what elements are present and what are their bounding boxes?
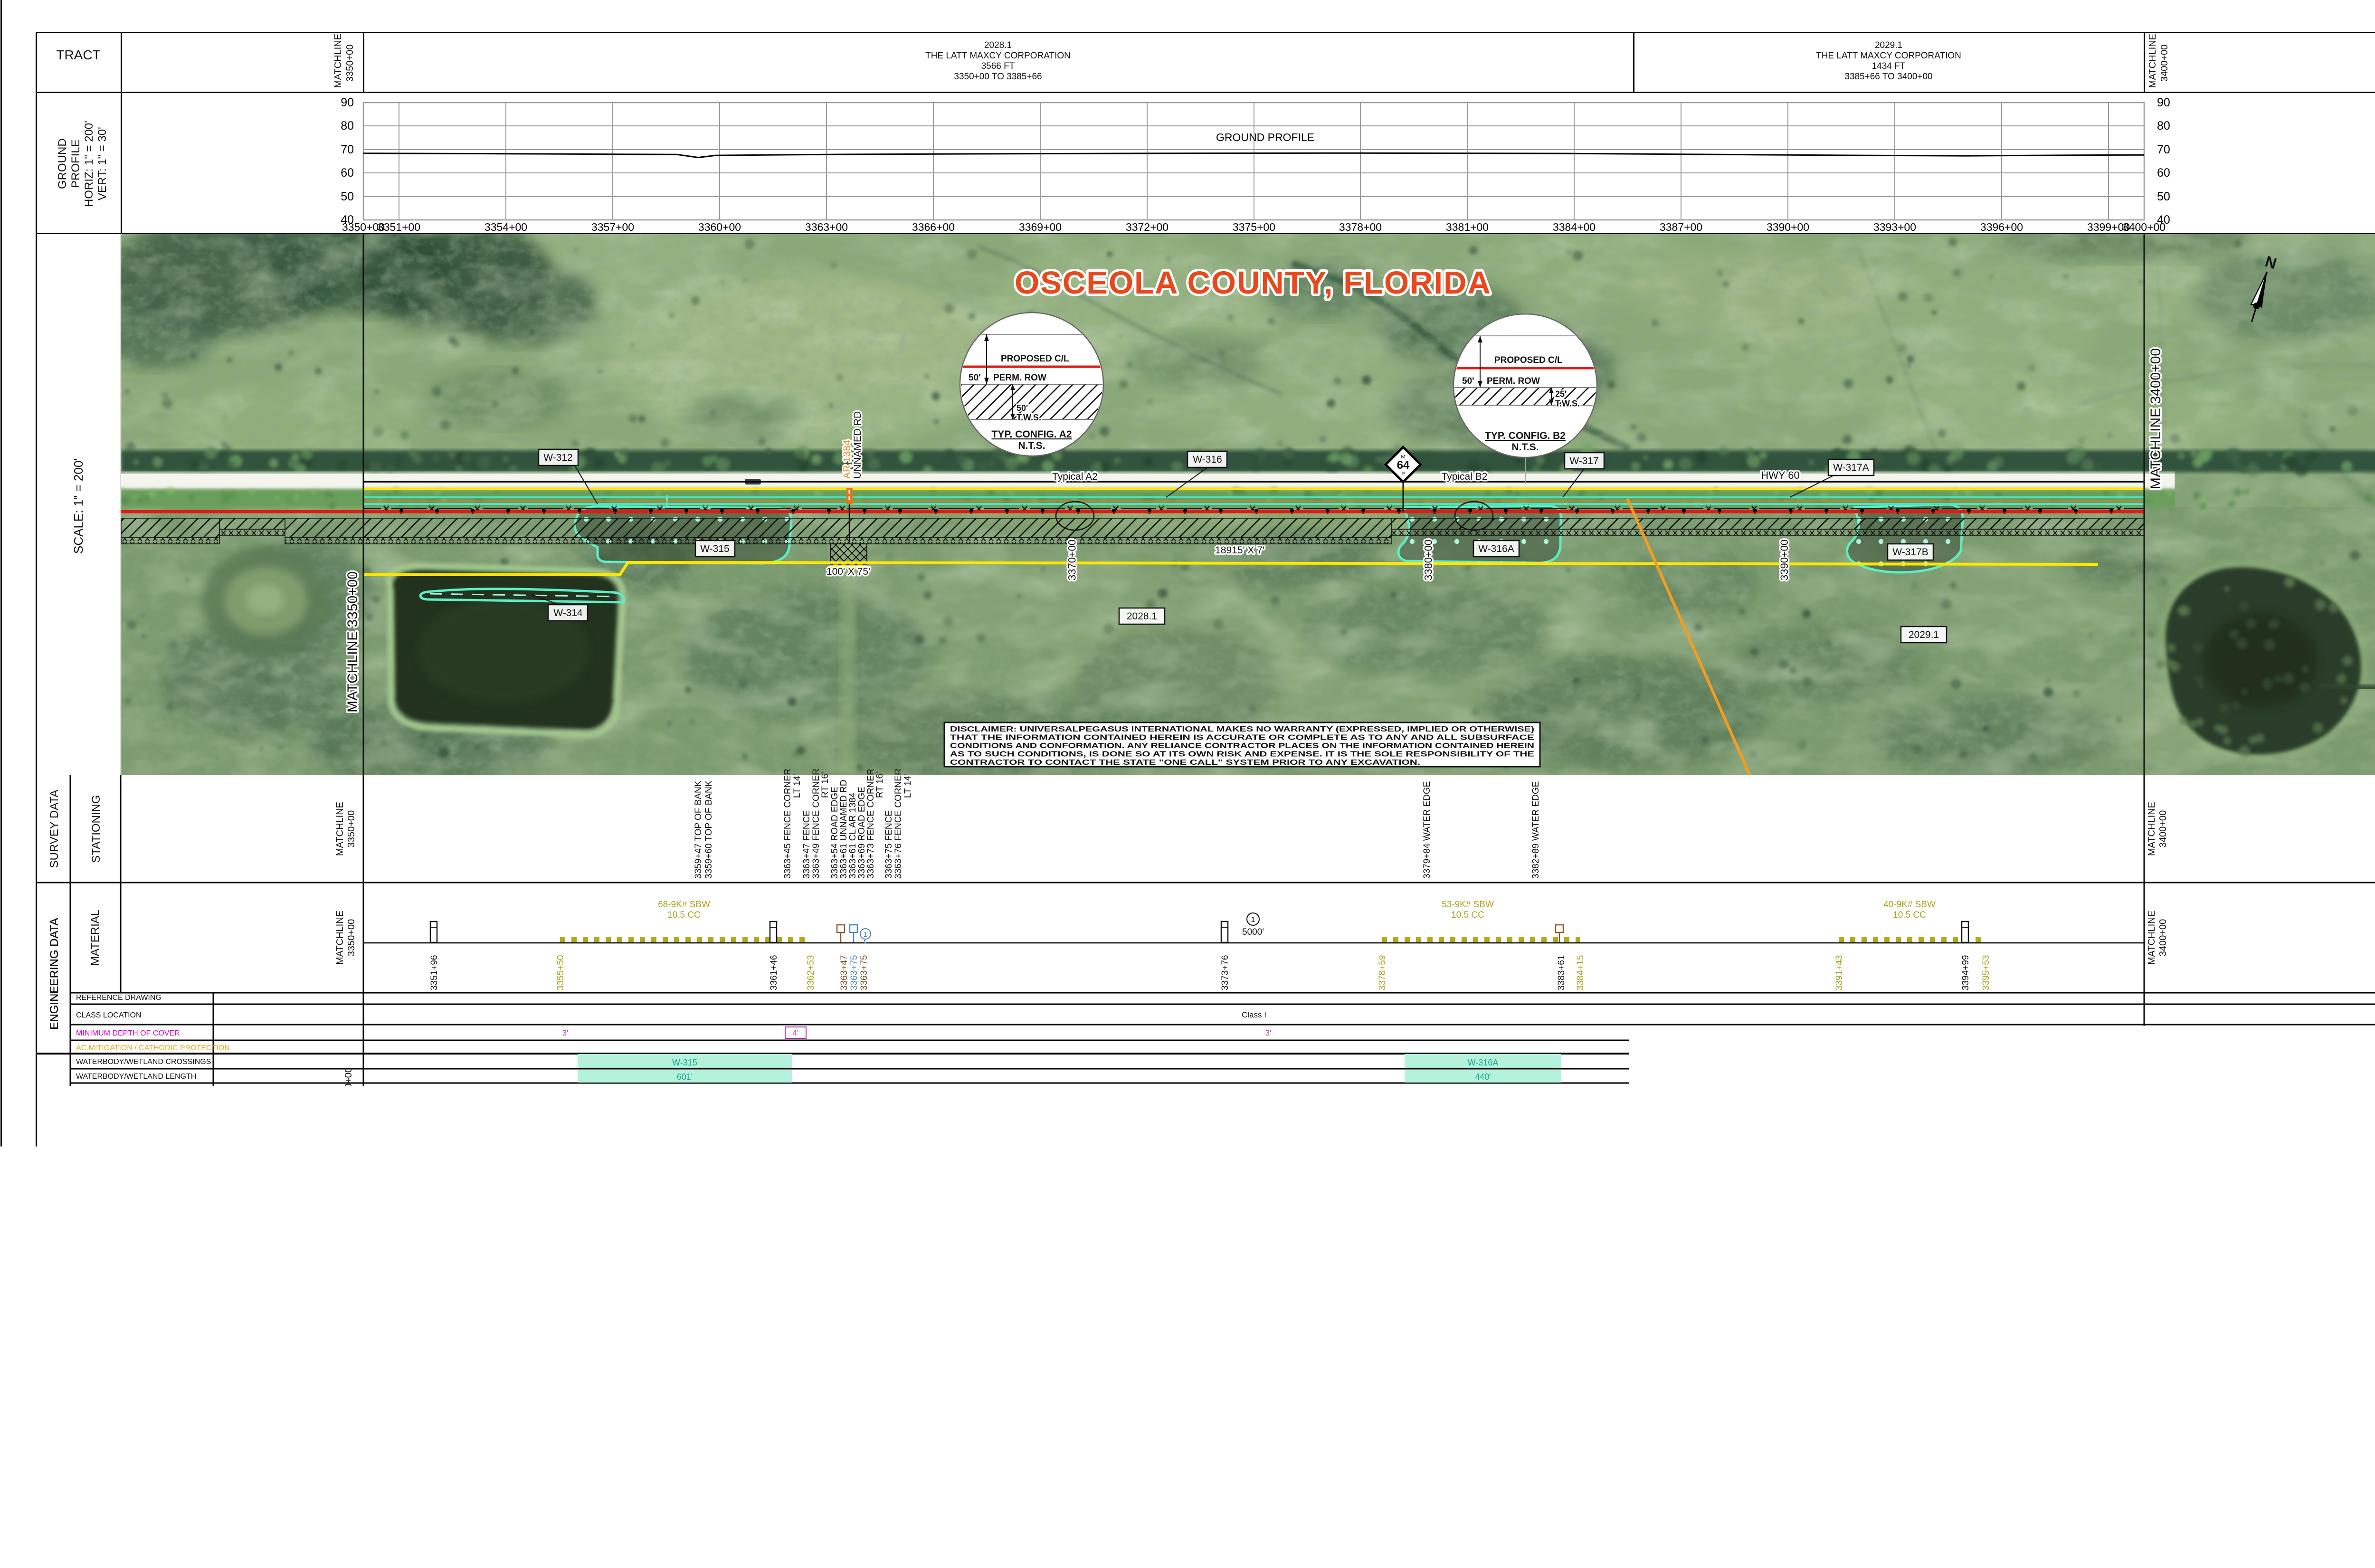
- svg-text:TM: TM: [2338, 1394, 2346, 1399]
- svg-text:A Subsidiary of Huntington Ing: A Subsidiary of Huntington Ingalls Indus…: [2018, 1403, 2174, 1412]
- svg-text:UniversalPegasus: UniversalPegasus: [2017, 1362, 2166, 1385]
- svg-text:INTERNATIONAL: INTERNATIONAL: [2057, 1388, 2171, 1399]
- svg-text:CONNECTION: CONNECTION: [2222, 1380, 2347, 1400]
